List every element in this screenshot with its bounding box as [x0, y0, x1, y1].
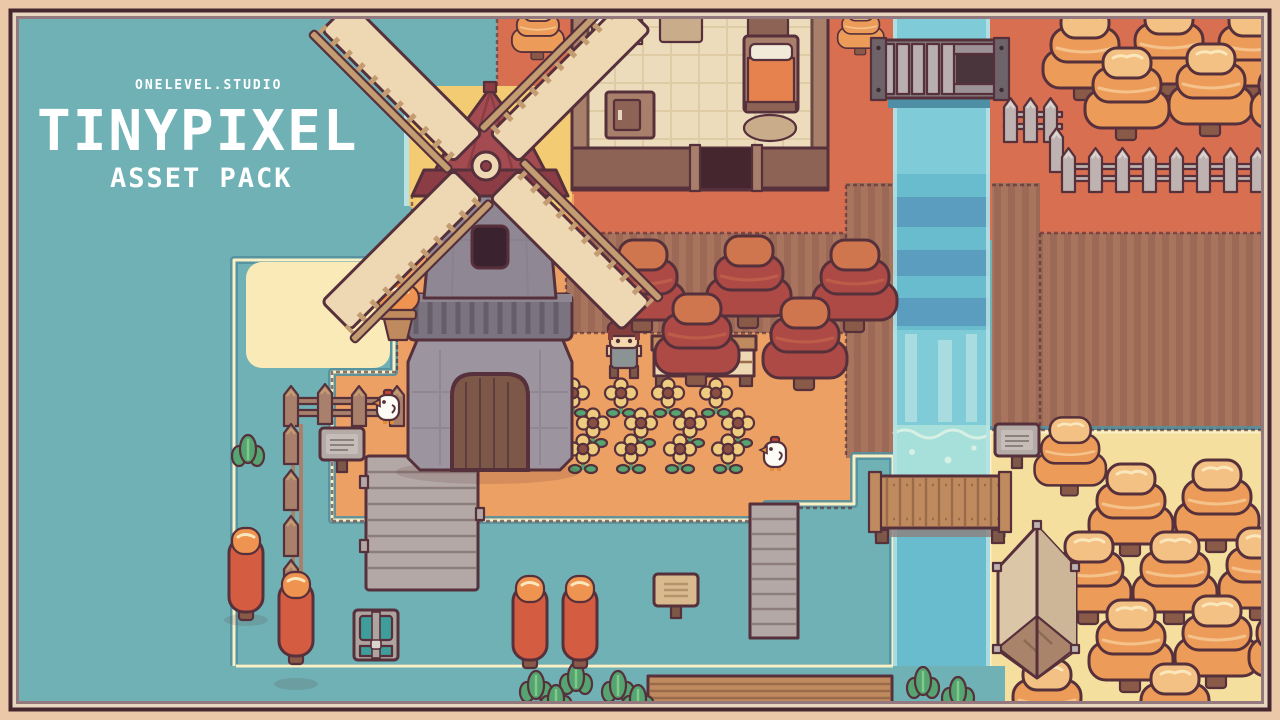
house-door-opening: [698, 148, 754, 188]
treasure-chest: [354, 610, 398, 660]
river: [888, 19, 990, 668]
stone-bridge: [871, 38, 1009, 100]
asset-pack-cover: ONELEVEL.STUDIO TINYPIXEL ASSET PACK: [0, 0, 1280, 720]
tilled-field-riverbank-east: [992, 183, 1040, 433]
windmill-window: [472, 226, 508, 268]
cypress-tree: [513, 576, 547, 668]
small-rug: [660, 16, 702, 42]
windmill-door: [452, 374, 528, 470]
cypress-tree: [279, 572, 313, 664]
tilled-field-east: [1040, 233, 1261, 433]
pack-subtitle: ASSET PACK: [110, 163, 293, 194]
ladder-path: [750, 504, 798, 638]
oval-rug: [744, 115, 796, 141]
cypress-tree: [229, 528, 263, 620]
dock: [648, 676, 892, 703]
cypress-tree: [563, 576, 597, 668]
pack-title: TINYPIXEL: [37, 99, 358, 164]
bed: [744, 36, 798, 112]
dresser: [606, 92, 654, 138]
studio-name: ONELEVEL.STUDIO: [135, 78, 282, 93]
wood-bridge: [869, 472, 1011, 543]
